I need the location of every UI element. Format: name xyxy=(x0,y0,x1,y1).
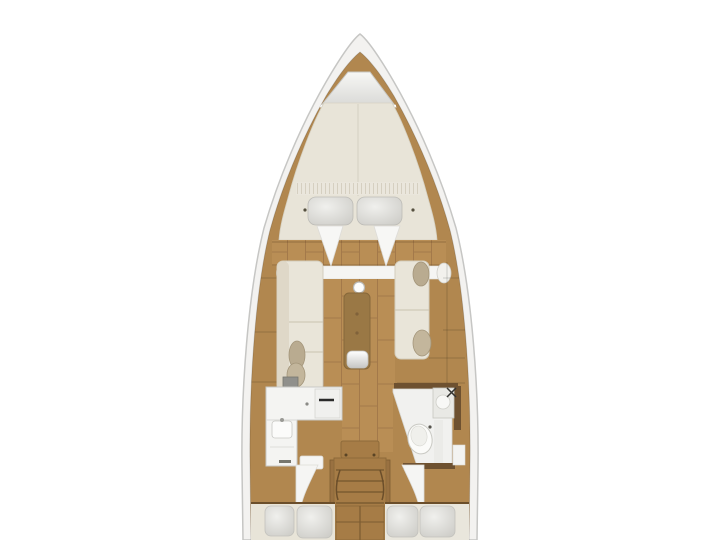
hinge xyxy=(373,454,376,457)
cabinet-handle xyxy=(279,460,291,463)
forward-pillow-right xyxy=(357,197,402,225)
reading-light-port xyxy=(303,208,306,211)
galley-knob xyxy=(305,402,308,405)
aft-starboard-shelf xyxy=(453,445,465,465)
aft-pillow xyxy=(265,506,294,536)
galley-stove xyxy=(315,389,340,418)
forward-pillow-left xyxy=(308,197,353,225)
armrest-end-starboard xyxy=(437,263,451,283)
aft-pillow xyxy=(387,506,418,537)
settee-port xyxy=(277,261,323,391)
yacht-floorplan-image xyxy=(0,0,720,540)
aft-pillow xyxy=(297,506,332,538)
aft-pillow xyxy=(420,506,455,537)
yacht-layout-svg xyxy=(0,0,720,540)
companionway-steps xyxy=(334,458,386,506)
blanket-fringe-band xyxy=(296,182,420,195)
reading-light-starboard xyxy=(411,208,414,211)
head-counter-edge xyxy=(434,420,443,464)
throw-pillow xyxy=(413,262,429,286)
galley-faucet xyxy=(280,418,284,422)
galley-sink xyxy=(272,421,292,438)
table-detail xyxy=(355,312,358,315)
toilet-flush xyxy=(428,425,431,428)
throw-pillow xyxy=(413,330,431,356)
settee-starboard xyxy=(395,261,431,359)
mast-post xyxy=(354,282,365,293)
galley-hatch xyxy=(283,377,298,387)
table-detail xyxy=(355,331,358,334)
head-wall-outboard xyxy=(454,386,461,430)
table-footrest xyxy=(347,351,368,368)
hinge xyxy=(345,454,348,457)
